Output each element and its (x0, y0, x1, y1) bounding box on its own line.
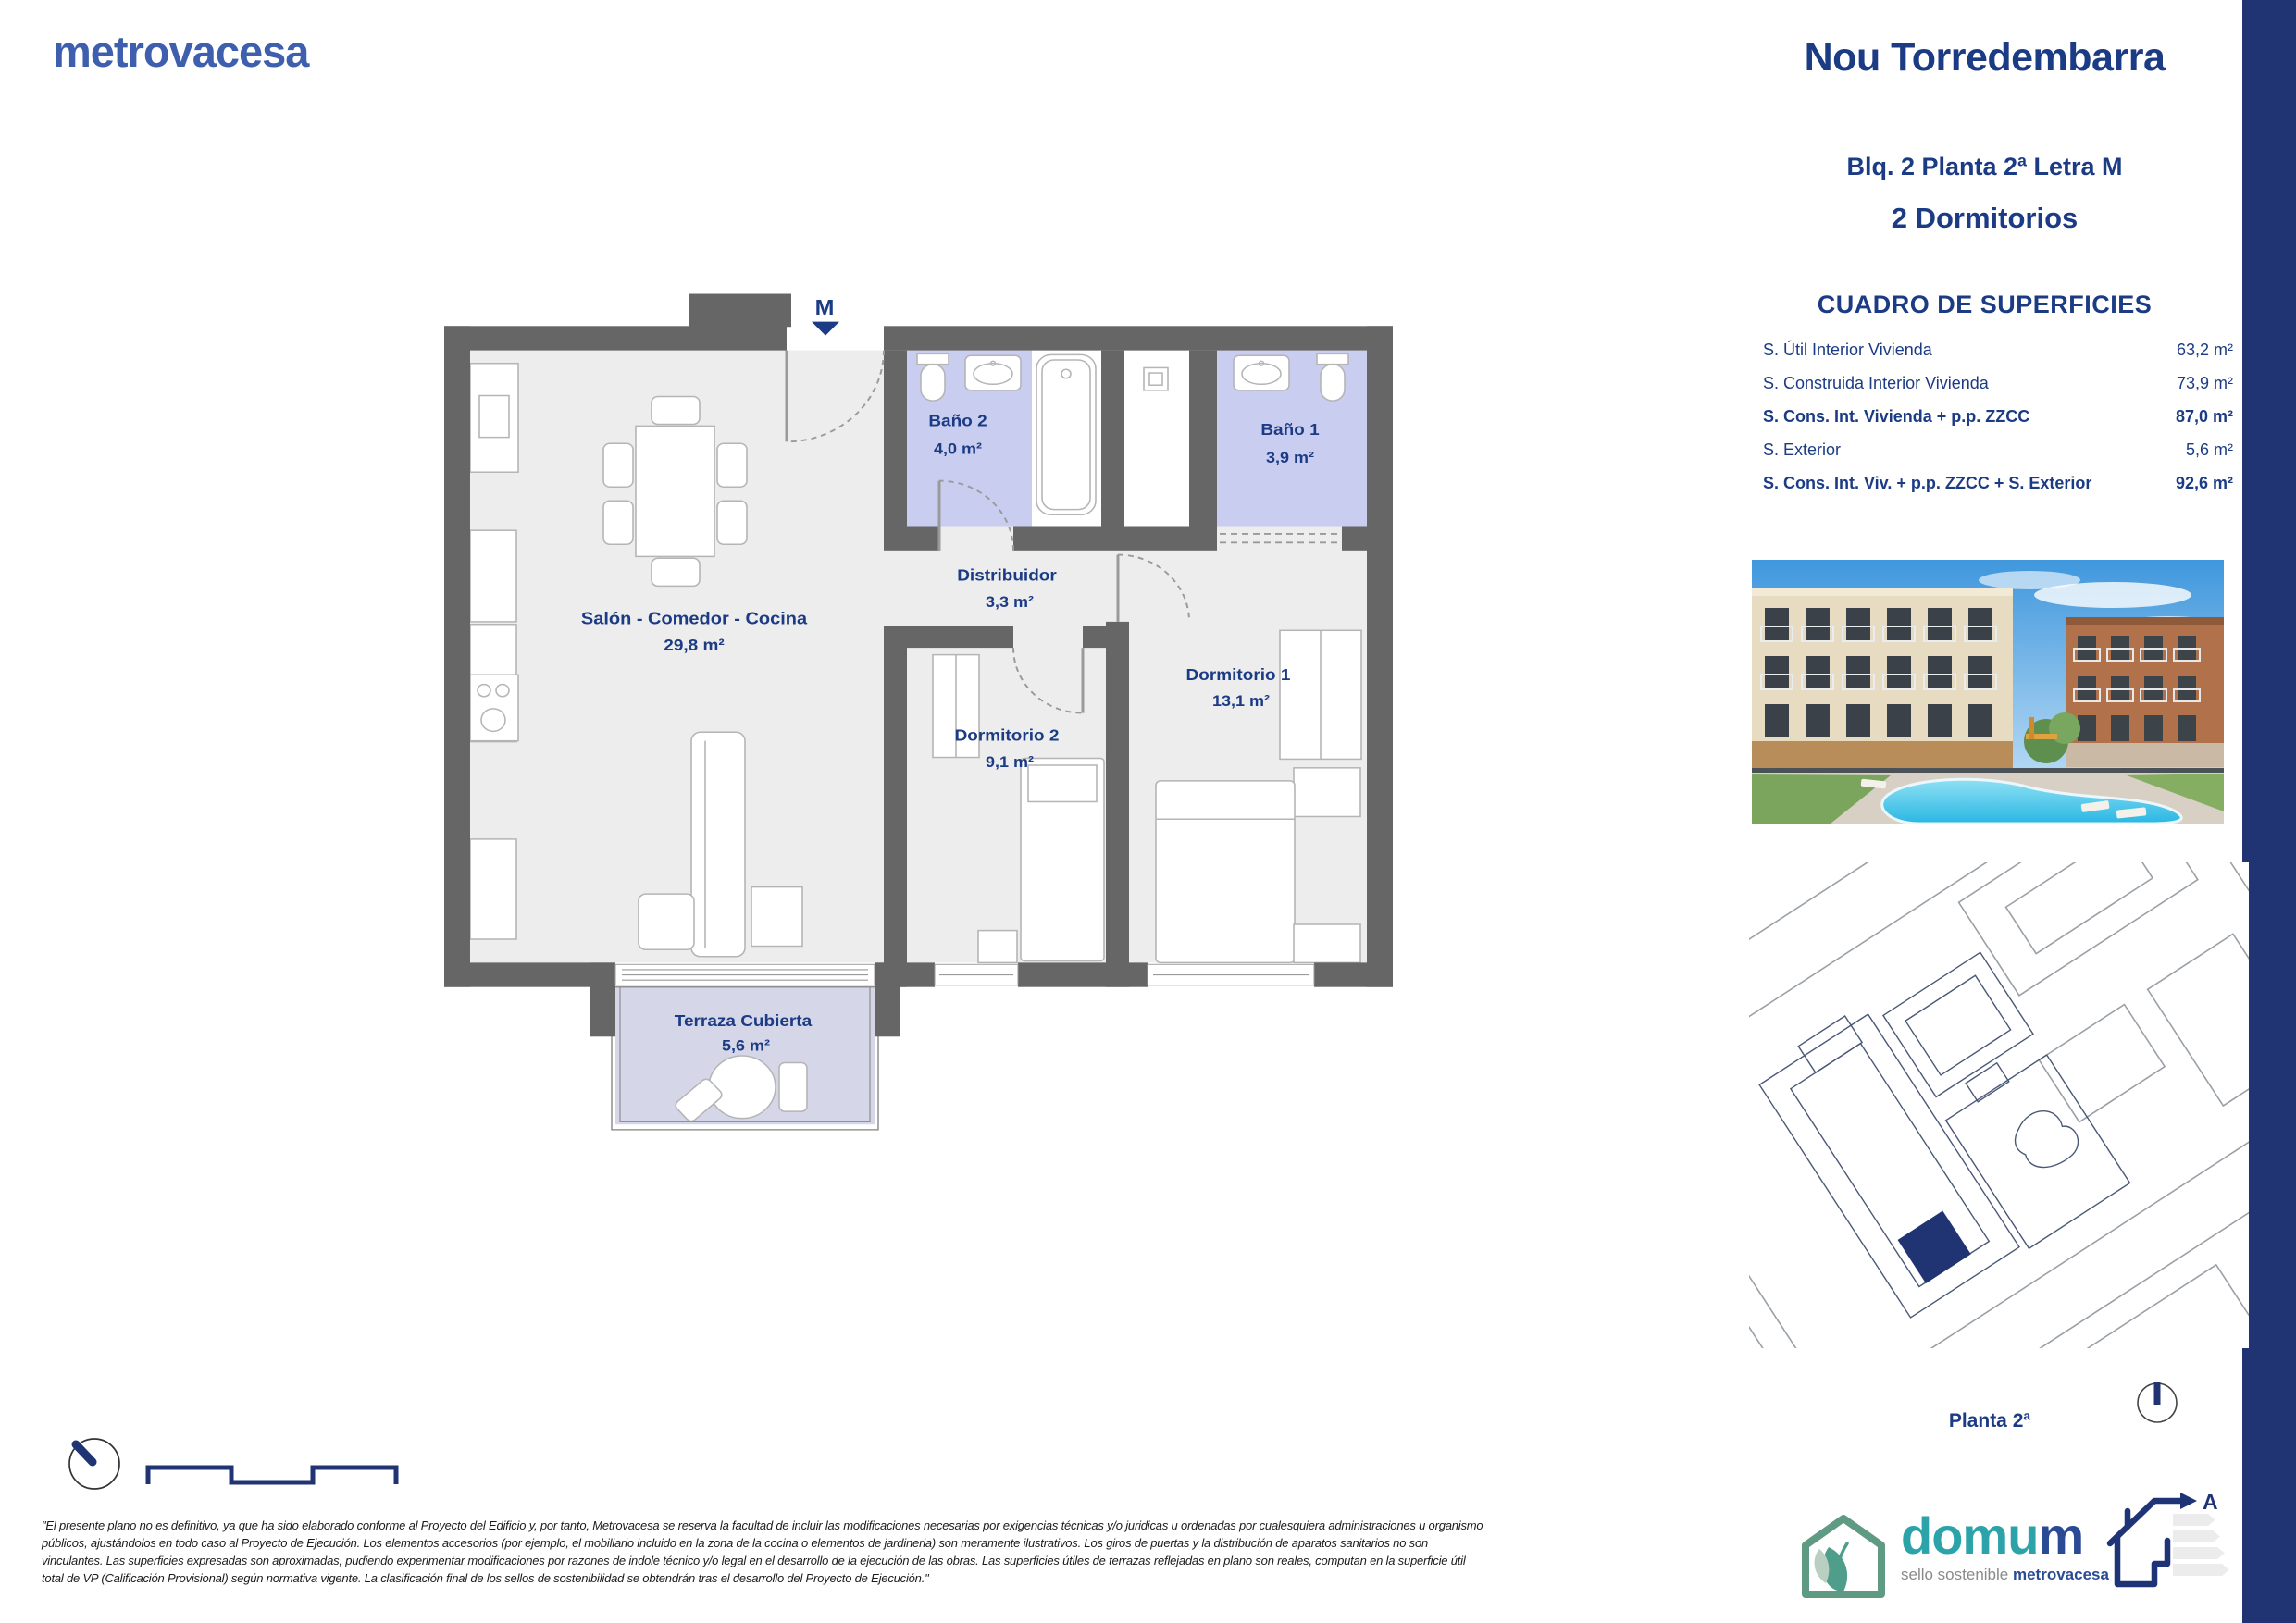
svg-text:Salón - Comedor - Cocina: Salón - Comedor - Cocina (581, 609, 807, 628)
site-plan (1749, 862, 2249, 1348)
surface-label: S. Útil Interior Vivienda (1763, 341, 1932, 360)
surface-value: 87,0 m² (2176, 407, 2233, 427)
table-row: S. Exterior 5,6 m² (1763, 433, 2233, 466)
surfaces-table: S. Útil Interior Vivienda 63,2 m² S. Con… (1763, 333, 2233, 500)
svg-text:Dormitorio 1: Dormitorio 1 (1186, 664, 1291, 683)
windows (615, 964, 1314, 985)
legal-disclaimer: "El presente plano no es definitivo, ya … (42, 1518, 1485, 1587)
svg-text:Baño 2: Baño 2 (928, 411, 987, 429)
energy-rating-icon: A (2103, 1488, 2232, 1604)
surface-value: 63,2 m² (2177, 341, 2233, 360)
entry-letter: M (815, 296, 835, 320)
svg-text:29,8 m²: 29,8 m² (664, 635, 724, 653)
plan-sheet: metrovacesa Nou Torredembarra Blq. 2 Pla… (0, 0, 2296, 1623)
bedroom-count: 2 Dormitorios (1738, 202, 2231, 235)
plan-compass-icon (65, 1434, 124, 1493)
domum-wordmark: domum (1901, 1510, 2109, 1562)
surface-label: S. Exterior (1763, 440, 1841, 460)
energy-bars (2173, 1514, 2229, 1576)
domum-tagline: sello sostenible metrovacesa (1901, 1566, 2109, 1584)
metrovacesa-logo: metrovacesa (53, 26, 308, 77)
svg-text:3,9 m²: 3,9 m² (1266, 448, 1314, 465)
unit-reference: Blq. 2 Planta 2ª Letra M (1738, 153, 2231, 181)
left-building (1752, 588, 2013, 771)
surfaces-title: CUADRO DE SUPERFICIES (1738, 291, 2231, 319)
svg-text:Terraza Cubierta: Terraza Cubierta (675, 1011, 813, 1030)
north-compass-icon (2133, 1379, 2181, 1427)
table-row: S. Cons. Int. Vivienda + p.p. ZZCC 87,0 … (1763, 400, 2233, 433)
page-title: Nou Torredembarra (1738, 35, 2231, 81)
surface-value: 92,6 m² (2176, 474, 2233, 493)
svg-text:9,1 m²: 9,1 m² (986, 752, 1034, 770)
surface-label: S. Construida Interior Vivienda (1763, 374, 1989, 393)
domum-house-leaf-icon (1797, 1510, 1890, 1603)
domum-logo: domum sello sostenible metrovacesa (1797, 1510, 2109, 1603)
svg-text:5,6 m²: 5,6 m² (722, 1036, 770, 1054)
surface-value: 5,6 m² (2186, 440, 2233, 460)
right-building (2066, 617, 2224, 767)
table-row: S. Cons. Int. Viv. + p.p. ZZCC + S. Exte… (1763, 466, 2233, 500)
floor-plan: M Baño 2 4,0 m² Baño 1 3,9 m² Distribuid… (416, 287, 1434, 1157)
entry-arrow-icon (812, 322, 839, 336)
scale-bar (141, 1460, 404, 1490)
entry-marker: M (812, 296, 839, 336)
surface-value: 73,9 m² (2177, 374, 2233, 393)
surface-label: S. Cons. Int. Vivienda + p.p. ZZCC (1763, 407, 2029, 427)
svg-text:4,0 m²: 4,0 m² (934, 440, 982, 457)
svg-text:Baño 1: Baño 1 (1260, 419, 1319, 438)
surface-label: S. Cons. Int. Viv. + p.p. ZZCC + S. Exte… (1763, 474, 2091, 493)
table-row: S. Útil Interior Vivienda 63,2 m² (1763, 333, 2233, 366)
svg-text:13,1 m²: 13,1 m² (1212, 692, 1270, 710)
building-photo (1752, 560, 2224, 824)
accent-bar (2242, 0, 2296, 1623)
energy-rating-letter: A (2203, 1490, 2218, 1514)
table-row: S. Construida Interior Vivienda 73,9 m² (1763, 366, 2233, 400)
svg-text:Distribuidor: Distribuidor (957, 565, 1057, 584)
svg-text:Dormitorio 2: Dormitorio 2 (955, 725, 1060, 744)
svg-text:3,3 m²: 3,3 m² (986, 592, 1034, 610)
